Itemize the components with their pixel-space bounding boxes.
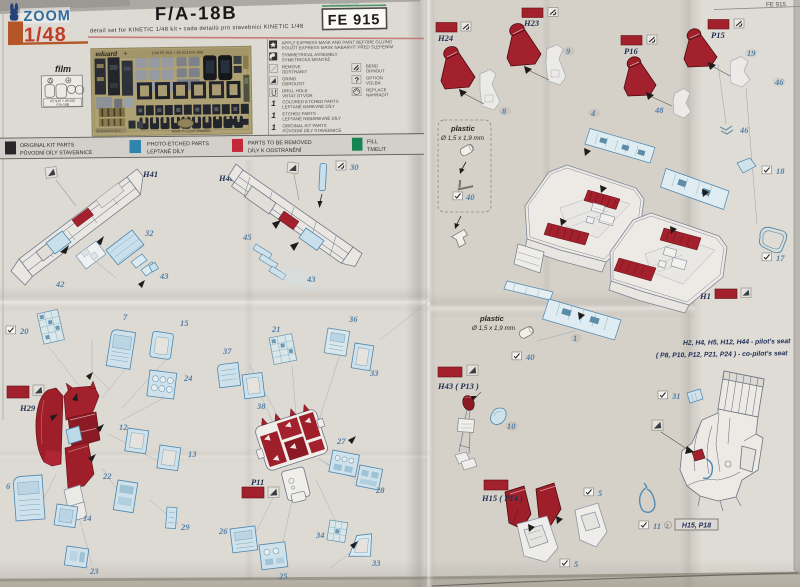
svg-text:15: 15 (180, 318, 189, 328)
svg-text:H24: H24 (437, 33, 453, 43)
svg-text:2: 2 (666, 524, 669, 530)
svg-text:12: 12 (119, 422, 128, 432)
svg-text:38: 38 (256, 401, 266, 411)
svg-text:26: 26 (218, 526, 228, 536)
svg-text:1/48 FE 915 + 49 013 F/A-1: 1/48 FE 915 + 49 013 F/A-18B (151, 50, 203, 55)
svg-text:37: 37 (222, 346, 232, 356)
svg-text:TMELIT: TMELIT (367, 147, 387, 153)
svg-text:22: 22 (102, 471, 112, 481)
svg-text:eduard: eduard (95, 51, 118, 58)
svg-text:4: 4 (590, 108, 595, 118)
svg-text:33: 33 (369, 368, 379, 378)
svg-text:ZOOM: ZOOM (23, 8, 71, 25)
svg-text:F/A-18B: F/A-18B (57, 103, 70, 107)
svg-text:30: 30 (349, 162, 359, 172)
svg-text:17: 17 (776, 253, 785, 263)
svg-text:43: 43 (306, 274, 316, 284)
svg-text:OHNOUT: OHNOUT (366, 68, 385, 73)
svg-text:25: 25 (278, 571, 288, 581)
svg-text:www.eduard.com: www.eduard.com (330, 2, 359, 6)
svg-text:H29: H29 (19, 403, 36, 413)
svg-text:48: 48 (654, 105, 664, 115)
svg-text:40: 40 (465, 192, 475, 202)
svg-text:PARTS TO BE REMOVED: PARTS TO BE REMOVED (248, 140, 312, 147)
svg-text:Ø 1,5 x 1,9 mm: Ø 1,5 x 1,9 mm (440, 135, 484, 142)
svg-text:24: 24 (183, 373, 193, 383)
svg-text:plastic: plastic (450, 124, 476, 133)
svg-text:28: 28 (375, 485, 385, 495)
svg-text:Made in Czech Republic: Made in Czech Republic (172, 129, 211, 134)
svg-text:F/A-18B: F/A-18B (155, 2, 238, 24)
svg-text:H1: H1 (699, 291, 711, 301)
svg-text:43: 43 (159, 271, 169, 281)
svg-text:✈: ✈ (123, 51, 127, 57)
svg-text:OBROUSIT: OBROUSIT (282, 81, 305, 86)
svg-text:H43 ( P13 ): H43 ( P13 ) (437, 381, 479, 391)
svg-text:1: 1 (271, 111, 276, 120)
svg-text:45 EDUARD 2010: 45 EDUARD 2010 (96, 129, 121, 133)
svg-text:film: film (55, 64, 71, 74)
svg-text:31: 31 (671, 391, 681, 401)
svg-text:14: 14 (83, 513, 92, 523)
svg-text:1: 1 (573, 333, 577, 343)
svg-text:ODSTRANIT: ODSTRANIT (282, 69, 308, 74)
svg-text:H23: H23 (523, 18, 540, 28)
svg-text:36: 36 (348, 314, 358, 324)
svg-text:18: 18 (776, 166, 785, 176)
svg-text:10: 10 (507, 421, 516, 431)
svg-text:1: 1 (271, 99, 276, 108)
svg-text:P15: P15 (711, 30, 725, 40)
svg-text:PŮVODNÍ DÍLY STAVEBNICE: PŮVODNÍ DÍLY STAVEBNICE (20, 149, 93, 157)
svg-text:46: 46 (739, 125, 749, 135)
svg-text:11: 11 (653, 521, 661, 531)
svg-text:Ø 1,5 x 1,9 mm: Ø 1,5 x 1,9 mm (471, 325, 515, 332)
svg-text:LEPTANÉ NEBAREVNÉ DÍLY: LEPTANÉ NEBAREVNÉ DÍLY (282, 116, 341, 122)
svg-text:21: 21 (271, 324, 281, 334)
svg-text:P16: P16 (624, 46, 638, 56)
svg-text:23: 23 (89, 566, 99, 576)
svg-text:29: 29 (180, 522, 190, 532)
svg-text:H15 ( P14 ): H15 ( P14 ) (481, 493, 523, 503)
svg-text:45: 45 (242, 232, 252, 242)
svg-text:PŮVODNÍ DÍLY STAVEBNICE: PŮVODNÍ DÍLY STAVEBNICE (282, 128, 341, 134)
svg-text:34: 34 (315, 530, 325, 540)
svg-text:FILL: FILL (367, 139, 378, 145)
svg-text:LEPTANÉ DÍLY: LEPTANÉ DÍLY (147, 148, 185, 155)
svg-text:20: 20 (19, 326, 29, 336)
svg-text:27: 27 (336, 436, 346, 446)
svg-text:SYMETRICKÁ MONTÁŽ: SYMETRICKÁ MONTÁŽ (282, 57, 331, 63)
svg-text:1: 1 (271, 123, 276, 132)
svg-text:?: ? (355, 75, 360, 84)
svg-text:plastic: plastic (479, 314, 505, 323)
svg-text:13: 13 (188, 449, 197, 459)
svg-text:VOLBA: VOLBA (366, 80, 381, 85)
svg-text:H15, P18: H15, P18 (682, 523, 711, 530)
svg-text:PHOTO-ETCHED PARTS: PHOTO-ETCHED PARTS (147, 141, 209, 148)
svg-text:19: 19 (747, 48, 756, 58)
svg-text:ORIGINAL KIT PARTS: ORIGINAL KIT PARTS (20, 142, 75, 149)
svg-text:VRTAT OTVOR: VRTAT OTVOR (282, 93, 312, 98)
svg-text:P11: P11 (251, 477, 264, 487)
svg-text:32: 32 (144, 228, 154, 238)
svg-text:42: 42 (55, 279, 65, 289)
svg-text:NAHRADIT: NAHRADIT (366, 92, 389, 97)
svg-text:46: 46 (774, 77, 784, 87)
svg-text:FE 915: FE 915 (328, 12, 381, 29)
svg-text:40: 40 (525, 352, 535, 362)
svg-text:LEPTANÉ BAREVNÉ DÍLY: LEPTANÉ BAREVNÉ DÍLY (282, 104, 335, 110)
svg-text:33: 33 (371, 558, 381, 568)
svg-text:H41: H41 (142, 169, 158, 179)
